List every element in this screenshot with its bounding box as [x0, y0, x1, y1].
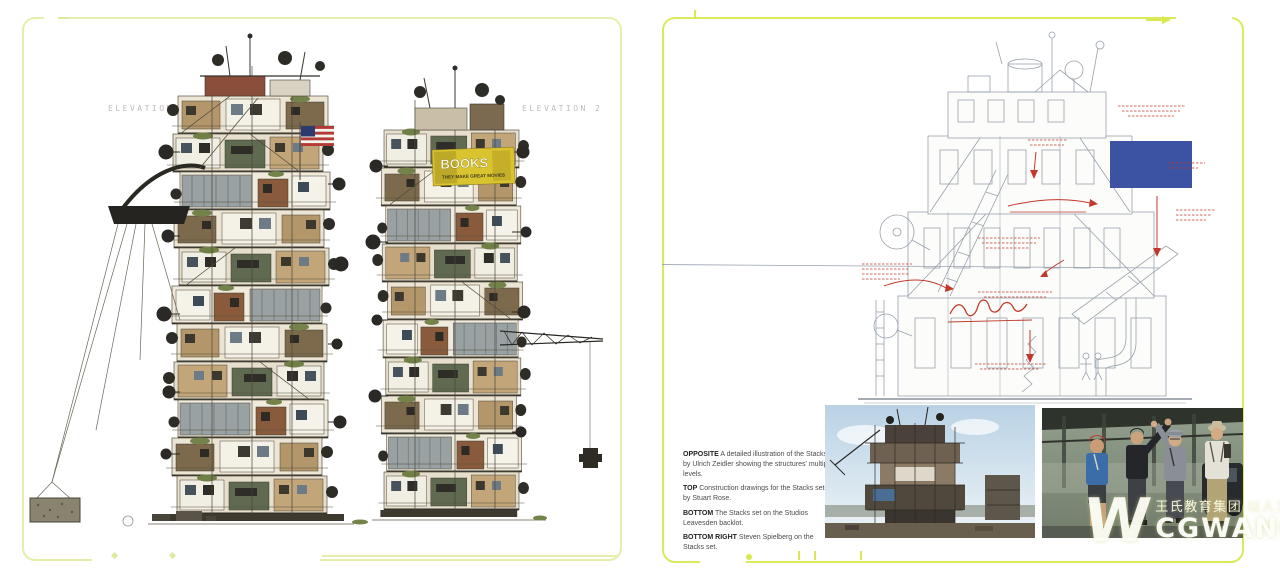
- caption-lead: OPPOSITE: [683, 451, 719, 458]
- sketch-linework: [662, 32, 1192, 403]
- photo-spielberg-set: [1042, 408, 1243, 538]
- blue-highlight-block: [1110, 141, 1192, 188]
- stacks-elevation-illustration: BOOKS THEY MAKE GREAT MOVIES: [22, 17, 620, 558]
- book-spread: ELEVATION 1 ELEVATION 2: [0, 0, 1280, 581]
- tower1-roof: [200, 34, 325, 97]
- caption-bottom-right: BOTTOM RIGHT Steven Spielberg on the Sta…: [683, 533, 835, 553]
- books-billboard: BOOKS THEY MAKE GREAT MOVIES: [432, 147, 515, 186]
- caption-text: Construction drawings for the Stacks set…: [683, 485, 828, 502]
- caption-block: OPPOSITE A detailed illustration of the …: [683, 450, 835, 557]
- photo-stacks-set: [825, 405, 1035, 538]
- caption-top: TOP Construction drawings for the Stacks…: [683, 484, 835, 504]
- caption-lead: BOTTOM: [683, 510, 713, 517]
- tower-elevation-2: BOOKS THEY MAKE GREAT MOVIES: [366, 66, 603, 521]
- caption-bottom: BOTTOM The Stacks set on the Studios Lea…: [683, 509, 835, 529]
- tower2-roof: [414, 66, 505, 131]
- caption-lead: BOTTOM RIGHT: [683, 534, 737, 541]
- caption-lead: TOP: [683, 485, 697, 492]
- caption-opposite: OPPOSITE A detailed illustration of the …: [683, 450, 835, 480]
- billboard-title: BOOKS: [440, 155, 488, 172]
